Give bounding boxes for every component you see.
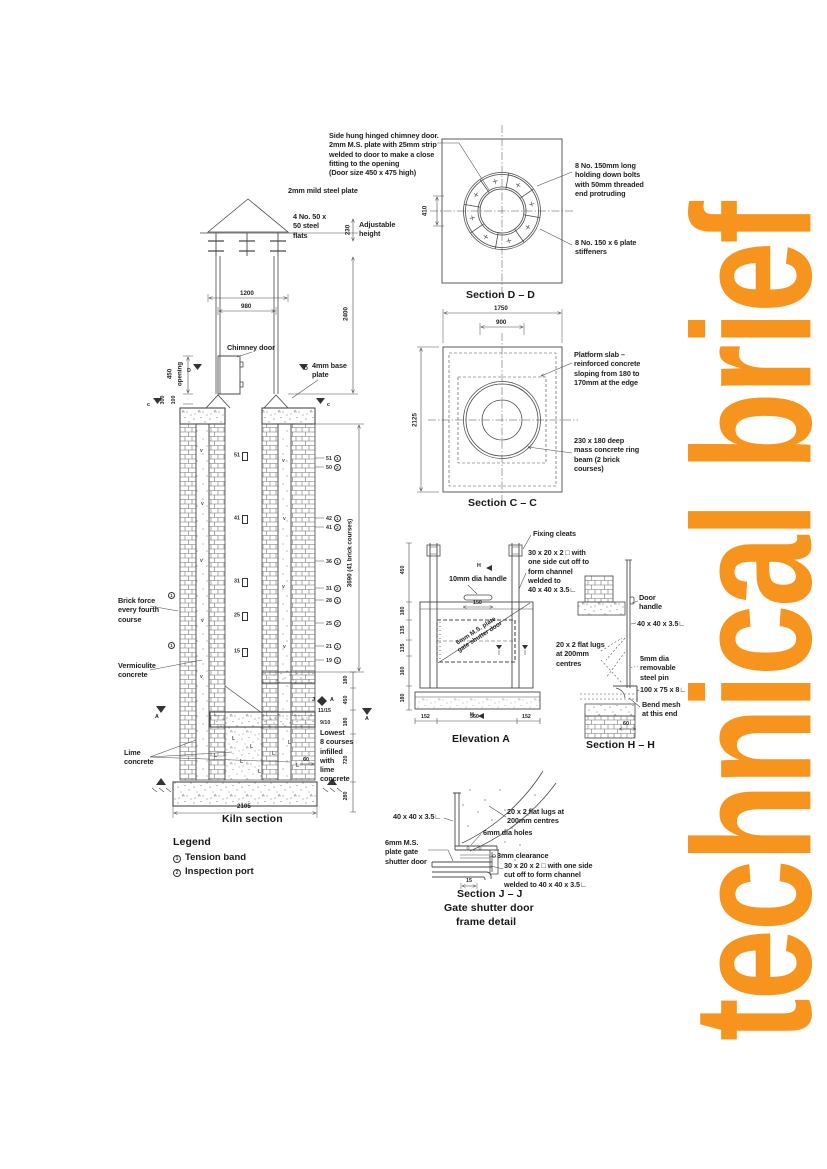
svg-text:L: L [250,744,253,750]
port-marker: 2 [334,620,341,627]
cut-marker-j: J [312,697,315,703]
elev-left-dim-3: 135 [400,644,406,653]
elevation-a-linework [406,535,622,724]
mild-steel-plate-label: 2mm mild steel plate [288,186,358,195]
section-jj-subtitle-1: Gate shutter door [444,902,534,914]
course-row: 421 [326,515,341,522]
plate-gate-note: 6mm M.S. plate gate shutter door [385,838,427,866]
section-dd-title: Section D – D [466,289,535,301]
tension-marker: 1 [334,597,341,604]
dim-1200: 1200 [240,290,254,297]
svg-text:v: v [282,584,285,590]
course-row: 502 [326,464,341,471]
dim-2105: 2105 [237,803,251,810]
holding-bolts-note: 8 No. 150mm long holding down bolts with… [575,161,644,198]
svg-text:v: v [200,558,203,564]
elev-bottom-dim-0: 152 [421,714,430,720]
tension-marker: 1 [334,515,341,522]
adjustable-height-label: Adjustable height [359,220,395,239]
course-row: 361 [326,558,341,565]
kiln-right-dim-4: 280 [343,792,349,801]
svg-text:v: v [283,644,286,650]
svg-text:v: v [201,618,204,624]
cut-marker-a: A [155,714,159,720]
port-square-icon [242,648,249,657]
section-jj-subtitle-2: frame detail [456,916,516,928]
flat-lugs-note-jj: 20 x 2 flat lugs at 200mm centres [507,807,564,826]
channel-note-jj: 30 x 20 x 2 □ with one side cut off to f… [504,861,593,889]
section-cc-title: Section C – C [468,497,537,509]
port-row: 31 [234,578,248,587]
section-jj-title: Section J – J [457,888,523,900]
port-marker: 2 [334,464,341,471]
course-row: 511 [326,455,341,462]
svg-text:v: v [201,501,204,507]
section-dd-linework [430,125,575,297]
ring-beam-note: 230 x 180 deep mass concrete ring beam (… [574,436,639,473]
cut-marker-c: c [147,402,150,408]
fixing-cleats-note: Fixing cleats [533,529,576,538]
clearance-note: 3mm clearance [497,851,548,860]
course-fraction-0: 11/15 [318,708,331,714]
svg-text:L: L [296,763,299,769]
course-row: 312 [326,585,341,592]
flat-lugs-note: 20 x 2 flat lugs at 200mm centres [556,640,605,668]
vermiculite-note: Vermiculite concrete [118,661,156,680]
svg-text:L: L [272,751,275,757]
dim-60-kiln: 60 [303,757,309,763]
port-row: 41 [234,515,248,524]
port-marker: 2 [334,524,341,531]
legend-title: Legend [173,836,211,848]
elev-left-dim-1: 180 [400,607,406,616]
svg-text:v: v [282,458,285,464]
dim-980: 980 [241,303,251,310]
dim-900: 900 [496,319,506,326]
chimney-door-label: Chimney door [227,343,275,352]
svg-text:L: L [240,759,243,765]
angle-40-note-jj: 40 x 40 x 3.5∟ [393,812,441,821]
legend-item-inspection-port: 2Inspection port [173,866,254,877]
section-hh-title: Section H – H [586,739,655,751]
circled-1-icon: 1 [173,855,181,863]
platform-slab-note: Platform slab – reinforced concrete slop… [574,350,640,387]
port-row: 25 [234,612,248,621]
course-row: 191 [326,657,341,664]
cut-marker-d: D [304,366,308,372]
port-marker: 2 [334,585,341,592]
cut-marker-d: D [187,368,191,374]
tension-marker: 1 [334,558,341,565]
port-square-icon [242,452,249,461]
kiln-right-dim-0: 180 [343,676,349,685]
tension-band-callout: 1 [168,592,175,599]
port-square-icon [242,515,249,524]
elev-left-dim-4: 160 [400,667,406,676]
port-square-icon [242,612,249,621]
kiln-section-linework [150,199,372,818]
channel-note-elevation: 30 x 20 x 2 □ with one side cut off to f… [528,548,589,594]
elev-left-dim-2: 135 [400,626,406,635]
kiln-right-dim-3: 720 [343,756,349,765]
elev-bottom-dim-2: 152 [522,714,531,720]
tension-marker: 1 [334,455,341,462]
port-square-icon [242,578,249,587]
base-plate-label: 4mm base plate [312,361,347,380]
section-cc-linework [417,309,578,506]
svg-text:v: v [200,448,203,454]
tension-marker: 1 [334,643,341,650]
port-row: 15 [234,648,248,657]
technical-brief-side-title: technical brief [656,203,827,1041]
brick-force-note: Brick force every fourth course [118,596,159,624]
lime-concrete-note: Lime concrete [124,748,154,767]
dim-opening-450: 450 [167,369,174,379]
svg-text:L: L [232,736,235,742]
dim-300: 300 [160,396,166,405]
elev-left-dim-0: 450 [400,566,406,575]
elevation-a-title: Elevation A [452,733,510,745]
elev-left-dim-5: 180 [400,694,406,703]
legend-item-tension-band: 1Tension band [173,852,246,863]
dia-holes-note: 6mm dia holes [483,828,532,837]
kiln-section-title: Kiln section [222,813,283,825]
dim-15: 15 [466,878,472,884]
circled-2-icon: 2 [173,869,181,877]
svg-text:L: L [214,753,217,759]
dim-2400: 2400 [343,307,350,321]
cut-marker-c: c [327,402,330,408]
tension-band-callout: 1 [168,642,175,649]
svg-text:L: L [258,769,261,775]
port-row: 51 [234,452,248,461]
course-row: 412 [326,524,341,531]
svg-text:L: L [288,740,291,746]
dim-150: 150 [473,600,482,606]
svg-text:v: v [283,516,286,522]
course-fraction-1: 9/10 [320,720,330,726]
chimney-door-note: Side hung hinged chimney door. 2mm M.S. … [329,131,441,177]
tension-marker: 1 [334,657,341,664]
kiln-right-dim-2: 180 [343,718,349,727]
dim-60-hh: 60 [623,721,629,727]
dim-100: 100 [171,396,177,405]
steel-flats-label: 4 No. 50 x 50 steel flats [293,212,326,240]
technical-brief-page: vv vv v vv vv LL LL LL LL [0,0,827,1169]
kiln-right-dim-1: 450 [343,696,349,705]
cut-marker-a: A [330,697,334,703]
dim-1750: 1750 [494,305,508,312]
cut-marker-h: H [470,712,474,718]
dim-2125: 2125 [412,413,419,427]
course-row: 281 [326,597,341,604]
dim-adjustable: 230 [345,225,352,235]
svg-text:v: v [200,674,203,680]
dim-410: 410 [422,206,429,216]
course-row: 211 [326,643,341,650]
dim-total-height: 3690 (41 brick courses) [347,519,354,587]
plate-stiffeners-note: 8 No. 150 x 6 plate stiffeners [575,238,636,257]
handle-note: 10mm dia handle [449,574,507,583]
opening-word: opening [177,362,184,386]
cut-marker-h: H [477,563,481,569]
cut-marker-a: A [365,716,369,722]
course-row: 252 [326,620,341,627]
